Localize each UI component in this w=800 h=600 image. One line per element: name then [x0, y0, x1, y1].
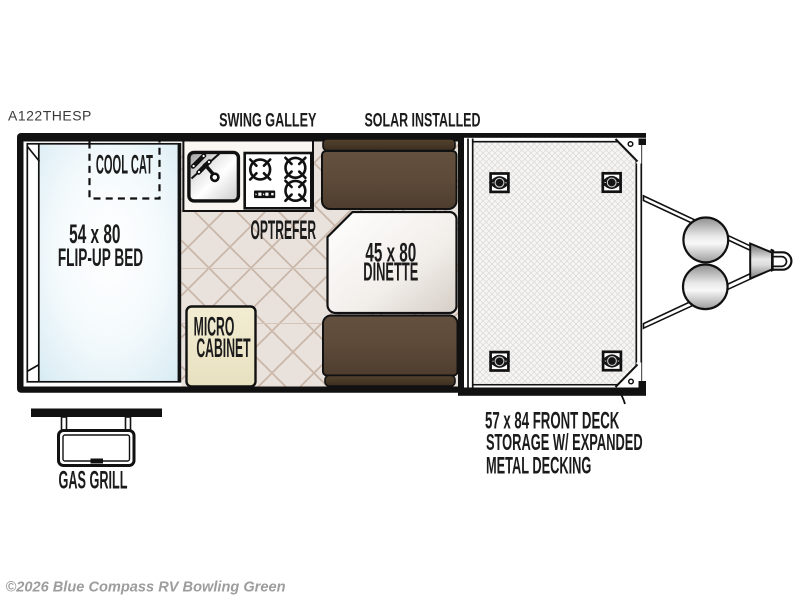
svg-text:FLIP-UP BED: FLIP-UP BED: [58, 245, 143, 272]
svg-text:METAL DECKING: METAL DECKING: [486, 454, 591, 480]
svg-text:STORAGE W/ EXPANDED: STORAGE W/ EXPANDED: [486, 429, 643, 455]
svg-text:©2026 Blue Compass RV Bowling: ©2026 Blue Compass RV Bowling Green: [6, 580, 286, 596]
svg-text:CABINET: CABINET: [196, 334, 250, 364]
svg-text:DINETTE: DINETTE: [363, 258, 418, 287]
svg-text:SWING GALLEY: SWING GALLEY: [219, 110, 316, 131]
svg-text:COOL CAT: COOL CAT: [96, 150, 153, 180]
svg-text:A122THESP: A122THESP: [8, 108, 92, 124]
svg-text:OPTREFER: OPTREFER: [251, 216, 317, 246]
svg-text:GAS GRILL: GAS GRILL: [59, 467, 128, 495]
svg-text:SOLAR INSTALLED: SOLAR INSTALLED: [365, 110, 481, 131]
